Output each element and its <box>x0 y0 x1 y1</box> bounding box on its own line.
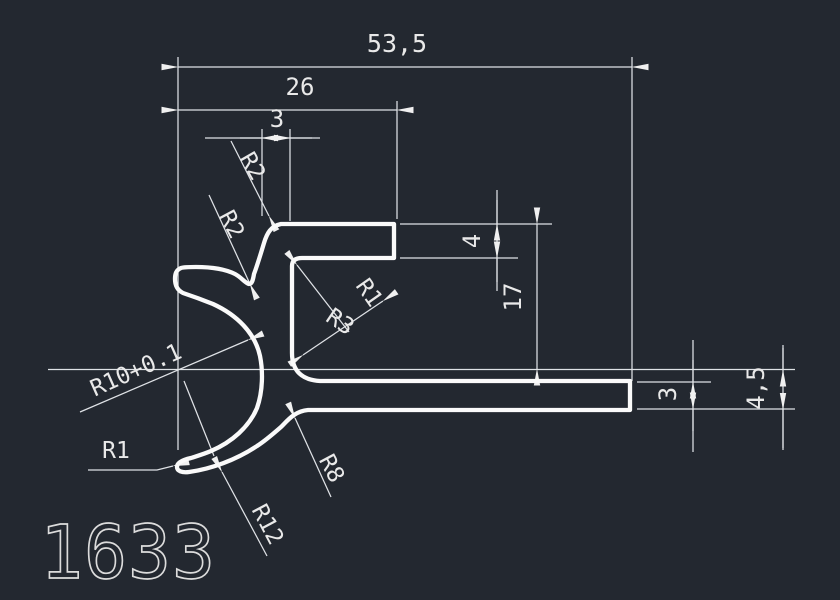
radius-label-r10: R10+0.1 <box>87 339 186 402</box>
radius-label-r8: R8 <box>313 450 349 487</box>
radius-label-r1-corner: R1 <box>350 274 387 312</box>
dimension-4[interactable]: 4 <box>400 190 552 291</box>
dim-label-arm-tip-thickness: 3 <box>654 387 682 401</box>
dimension-3-right[interactable]: 3 <box>637 340 795 452</box>
dim-label-overall-width: 53,5 <box>367 29 427 58</box>
radius-r3-fillet[interactable]: R3 <box>303 301 383 355</box>
radius-label-r12: R12 <box>246 500 288 549</box>
leader-extension <box>184 381 214 456</box>
radius-label-r2-valley: R2 <box>213 206 249 243</box>
dim-label-upper-width: 26 <box>286 73 315 101</box>
dimension-53-5[interactable]: 53,5 <box>178 29 632 450</box>
part-number: 1633 <box>40 510 216 596</box>
dimension-26[interactable]: 26 <box>178 73 397 219</box>
radius-label-r3: R3 <box>321 304 359 341</box>
profile-outline[interactable] <box>175 224 630 472</box>
radius-label-r2-outer: R2 <box>234 148 270 185</box>
dim-label-cavity-height: 17 <box>499 283 527 312</box>
cad-canvas[interactable]: 53,5 26 3 4 17 3 4,5 <box>0 0 840 600</box>
radius-r1-hook-tip[interactable]: R1 <box>88 438 173 470</box>
radius-label-r1-tip: R1 <box>102 438 130 464</box>
drawing-viewport[interactable]: 53,5 26 3 4 17 3 4,5 <box>0 0 840 600</box>
dim-label-flange-thickness: 4 <box>458 234 486 248</box>
dimension-4-5[interactable]: 4,5 <box>742 345 783 450</box>
radius-r10-bore[interactable]: R10+0.1 <box>80 339 248 412</box>
dim-label-wall-top: 3 <box>270 105 284 133</box>
radius-r2-outer[interactable]: R2 <box>231 141 270 216</box>
dim-label-arm-root-thickness: 4,5 <box>742 366 770 409</box>
leader-line <box>88 466 173 470</box>
radius-r8-fillet[interactable]: R8 <box>295 418 349 497</box>
